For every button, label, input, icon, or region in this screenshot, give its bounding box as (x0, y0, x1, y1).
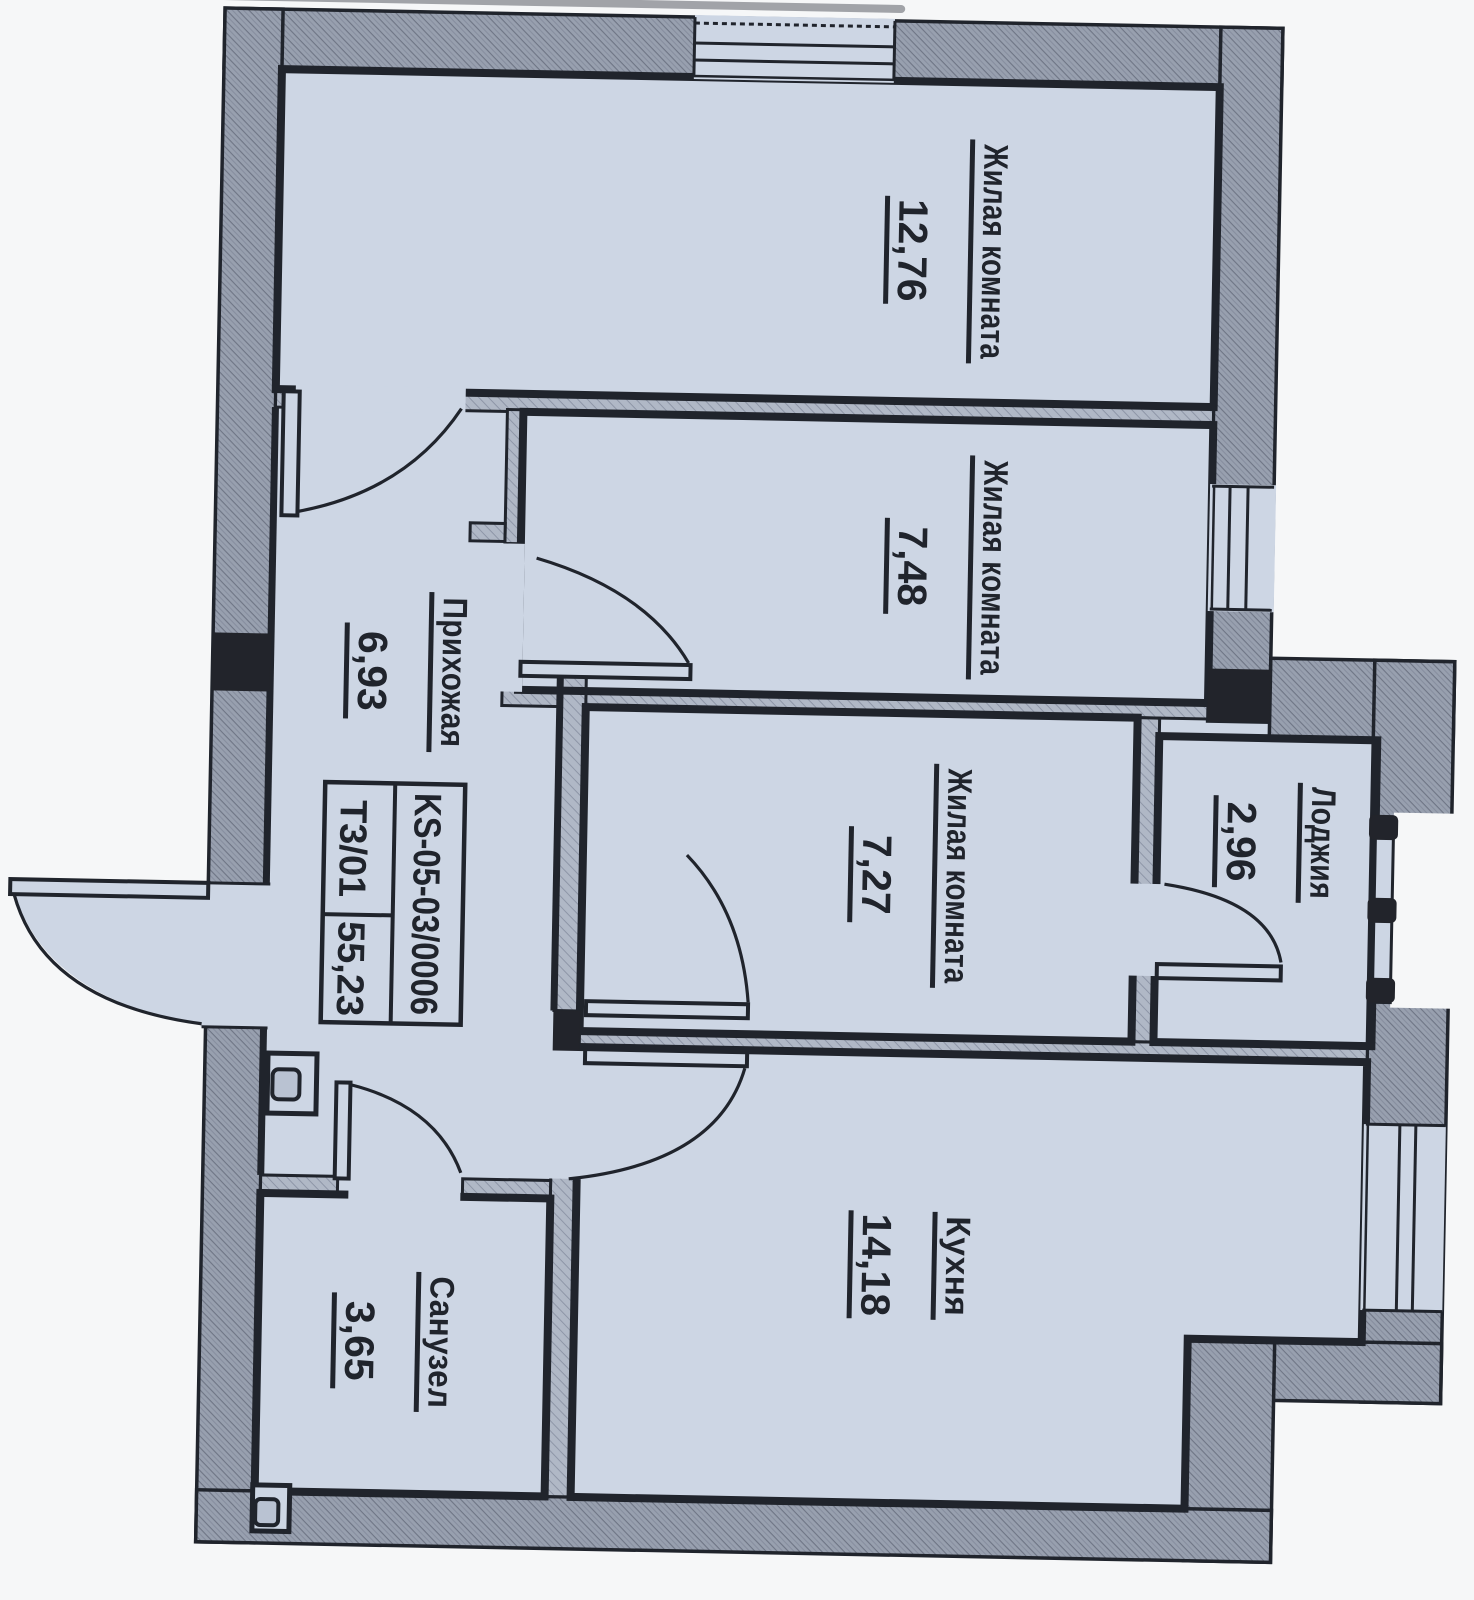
window-room2-cap-bottom (1210, 609, 1272, 610)
window-top (694, 15, 895, 83)
duct-box-hall-inner (272, 1069, 300, 1100)
entrance-jamb-top (204, 883, 270, 884)
window-kitchen (1360, 1124, 1446, 1312)
window-top-cap-left (694, 17, 695, 77)
underline (886, 196, 888, 304)
opening-room1-door (295, 384, 465, 413)
room-name: Жилая комната (937, 768, 979, 985)
loggia-glazing-post-mid (1368, 898, 1396, 923)
wall-door-jamb-stub (470, 523, 505, 542)
room-name: Лоджия (1302, 787, 1342, 900)
plan: Жилая комната 12,76 Жилая комната 7,48 Ж… (0, 0, 1471, 1566)
room2-door-leaf (520, 662, 690, 679)
room-name: Жилая комната (972, 459, 1014, 676)
loggia-glazing-post-bottom (1366, 978, 1394, 1003)
underline (849, 1210, 851, 1318)
room-name: Санузел (420, 1276, 461, 1409)
entrance-door-leaf (10, 879, 208, 898)
loggia-glazing-post-top (1369, 815, 1397, 840)
duct-box-bath-inner (255, 1499, 278, 1525)
stamp-table: KS-05-03/0006 Т3/01 55,23 (321, 782, 466, 1025)
room-area: 6,93 (349, 631, 397, 712)
loggia-door-leaf (1157, 964, 1281, 980)
stamp-unit: Т3/01 (330, 800, 374, 898)
underline (345, 622, 347, 718)
window-kitchen-cap-top (1366, 1124, 1446, 1126)
opening-entrance (201, 883, 272, 1028)
room-name: Кухня (937, 1216, 977, 1317)
wall-section-black-right (1208, 669, 1271, 722)
room-area: 3,65 (336, 1301, 384, 1382)
underline (333, 1292, 335, 1388)
underline (429, 592, 432, 752)
window-kitchen-opening (1360, 1124, 1446, 1312)
duct-box-bath (252, 1485, 290, 1532)
floor-plan-scan: Жилая комната 12,76 Жилая комната 7,48 Ж… (0, 0, 1474, 1600)
underline (886, 518, 888, 614)
room-area: 7,48 (889, 526, 937, 607)
room-area: 14,18 (852, 1213, 900, 1316)
room-name: Прихожая (433, 597, 474, 748)
room3-door-leaf (586, 1001, 748, 1018)
window-top-cap-right (894, 21, 895, 81)
room-area: 7,27 (853, 834, 901, 915)
kitchen-door-leaf (585, 1049, 747, 1066)
bathroom-door-leaf (335, 1082, 351, 1178)
stamp-total-area: 55,23 (328, 921, 372, 1017)
room-area: 12,76 (889, 199, 937, 302)
stamp-code: KS-05-03/0006 (402, 793, 448, 1016)
opening-bath-door (348, 1172, 461, 1202)
underline (416, 1272, 419, 1412)
window-room2 (1208, 484, 1276, 612)
underline (1298, 783, 1300, 903)
opening-hall-kitchen (546, 1050, 584, 1179)
room1-door-leaf (281, 391, 299, 515)
duct-box-hall (267, 1053, 317, 1114)
floor-plan-svg: Жилая комната 12,76 Жилая комната 7,48 Ж… (0, 0, 1474, 1600)
loggia-glazing (1366, 812, 1456, 1009)
outline-hall-left-lower (261, 1028, 264, 1175)
window-room2-cap-top (1212, 486, 1274, 487)
room-name: Жилая комната (973, 143, 1015, 360)
underline (933, 1212, 935, 1320)
room-area: 2,96 (1218, 801, 1266, 882)
underline (850, 826, 852, 922)
wall-section-black-left (212, 633, 271, 691)
wall-section-black-hall-end (553, 1011, 580, 1053)
window-kitchen-cap-bottom (1362, 1310, 1442, 1312)
stamp-col-divider (323, 914, 393, 915)
entrance-jamb-bottom (202, 1027, 268, 1028)
window-room2-opening (1208, 484, 1276, 612)
underline (1214, 795, 1216, 887)
loggia-glazing-notch (1390, 813, 1456, 1009)
